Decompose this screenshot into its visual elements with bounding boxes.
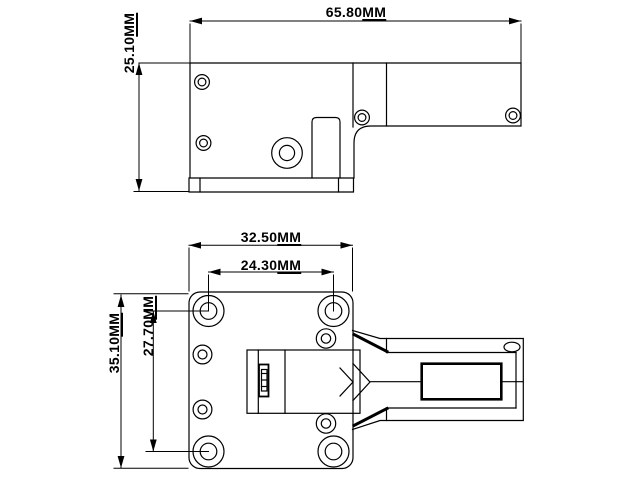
base-flange xyxy=(189,178,354,192)
screw-hole xyxy=(355,110,370,125)
strut-socket xyxy=(422,364,502,400)
screw-hole xyxy=(195,75,210,90)
screw-hole xyxy=(196,136,211,151)
pivot-hole xyxy=(272,138,303,169)
dim-overall-length xyxy=(190,18,521,62)
dimension-unit: MM xyxy=(277,257,301,273)
dimension-value: 32.50 xyxy=(241,229,278,245)
dimension-label-mount-plate-width: 32.50MM xyxy=(241,230,301,244)
dimension-unit: MM xyxy=(140,296,156,320)
dimension-value: 24.30 xyxy=(241,257,278,273)
wire-hole xyxy=(504,342,520,352)
dimension-label-overall-length: 65.80MM xyxy=(326,5,386,19)
slider-block xyxy=(247,350,370,413)
dimension-label-overall-height: 25.10MM xyxy=(122,13,136,73)
dimension-label-hole-spacing-vertical: 27.70MM xyxy=(141,296,155,356)
trunnion-arm xyxy=(353,331,524,430)
dim-overall-height xyxy=(134,63,189,192)
small-hole xyxy=(193,329,336,433)
boss xyxy=(312,118,340,179)
dimension-unit: MM xyxy=(121,13,137,37)
dimension-value: 35.10 xyxy=(106,337,122,374)
dimension-value: 27.70 xyxy=(140,320,156,357)
dimension-unit: MM xyxy=(106,313,122,337)
dimension-value: 65.80 xyxy=(326,4,363,20)
dim-hole-spacing-horizontal xyxy=(209,269,334,311)
dimension-unit: MM xyxy=(362,4,386,20)
technical-drawing xyxy=(0,0,640,480)
screw-hole xyxy=(506,108,521,123)
dimension-label-mount-plate-height: 35.10MM xyxy=(107,313,121,373)
front-view xyxy=(189,292,523,469)
drawing-canvas: 65.80MM 25.10MM 32.50MM 24.30MM 27.70MM … xyxy=(0,0,640,480)
side-view xyxy=(189,63,521,192)
dimension-label-hole-spacing-horizontal: 24.30MM xyxy=(241,258,301,272)
dimension-unit: MM xyxy=(277,229,301,245)
corner-mount-hole xyxy=(193,296,349,468)
dimension-value: 25.10 xyxy=(121,37,137,74)
mount-plate xyxy=(189,292,353,469)
